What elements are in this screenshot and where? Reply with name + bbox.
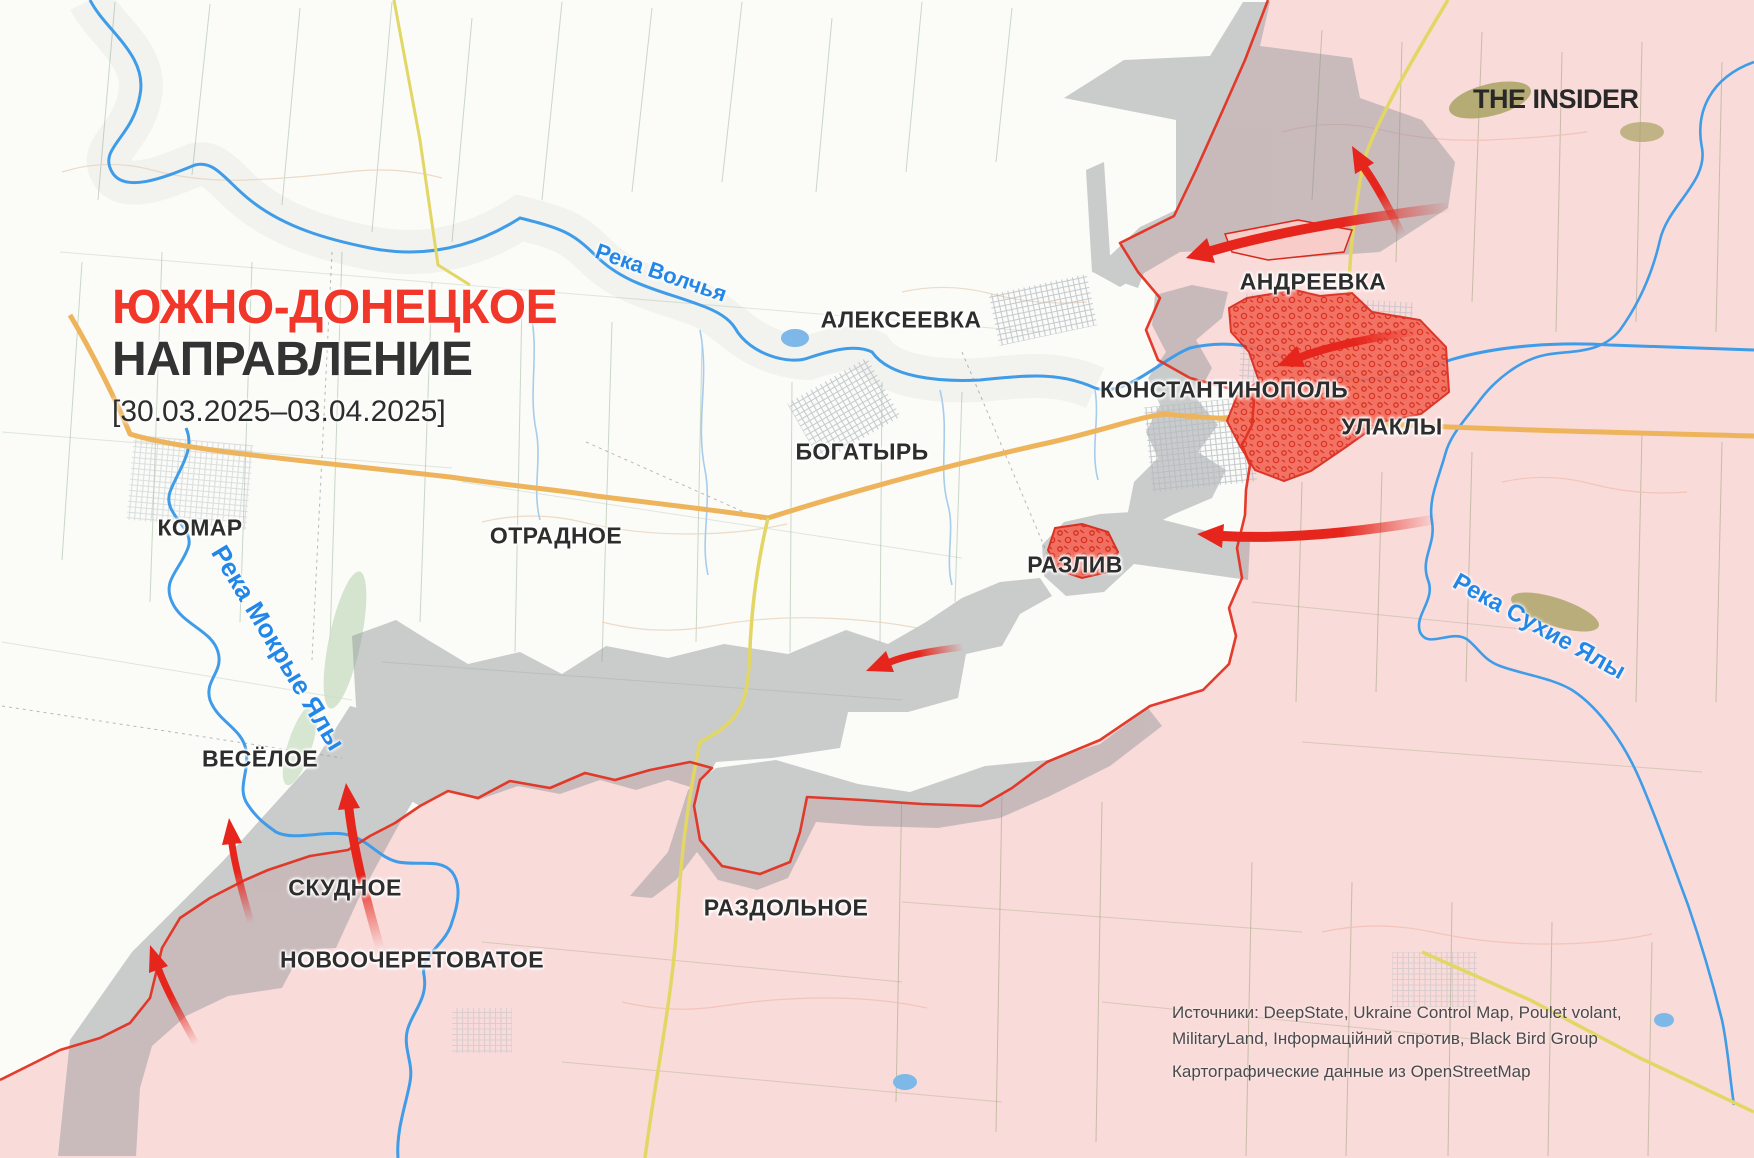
town-label-razliv: РАЗЛИВ <box>1027 552 1122 579</box>
map-canvas <box>0 0 1754 1158</box>
town-label-alekseevka: АЛЕКСЕЕВКА <box>821 307 982 334</box>
town-label-bogatyr: БОГАТЫРЬ <box>795 439 928 466</box>
town-label-vesyoloe: ВЕСЁЛОЕ <box>202 746 318 773</box>
town-label-otradnoe: ОТРАДНОЕ <box>490 523 622 550</box>
publisher-logo: THE INSIDER <box>1473 84 1639 115</box>
map-title: НАПРАВЛЕНИЕ <box>112 334 557 386</box>
town-label-razdolnoe: РАЗДОЛЬНОЕ <box>704 895 869 922</box>
forest-patch <box>1620 122 1664 142</box>
date-range: [30.03.2025–03.04.2025] <box>112 396 557 428</box>
pond <box>893 1074 917 1090</box>
map-data-credit: Картографические данные из OpenStreetMap <box>1172 1059 1622 1085</box>
title-block: ЮЖНО-ДОНЕЦКОЕ НАПРАВЛЕНИЕ [30.03.2025–03… <box>112 282 557 428</box>
attribution: Источники: DeepState, Ukraine Control Ma… <box>1172 1000 1622 1085</box>
town-label-andreevka: АНДРЕЕВКА <box>1240 269 1387 296</box>
town-label-komar: КОМАР <box>157 515 242 542</box>
sources-line1: Источники: DeepState, Ukraine Control Ma… <box>1172 1000 1622 1026</box>
town-label-skudnoe: СКУДНОЕ <box>288 875 401 902</box>
map-title-accent: ЮЖНО-ДОНЕЦКОЕ <box>112 282 557 334</box>
sources-line2: MilitaryLand, Інформаційний спротив, Bla… <box>1172 1026 1622 1052</box>
pond <box>781 329 809 347</box>
map-infographic: ЮЖНО-ДОНЕЦКОЕ НАПРАВЛЕНИЕ [30.03.2025–03… <box>0 0 1754 1158</box>
town-label-ulakly: УЛАКЛЫ <box>1341 414 1442 441</box>
town-label-konstantinopol: КОНСТАНТИНОПОЛЬ <box>1100 377 1348 404</box>
town-label-novoocheretovatoe: НОВООЧЕРЕТОВАТОЕ <box>280 947 544 974</box>
pond <box>1654 1013 1674 1027</box>
